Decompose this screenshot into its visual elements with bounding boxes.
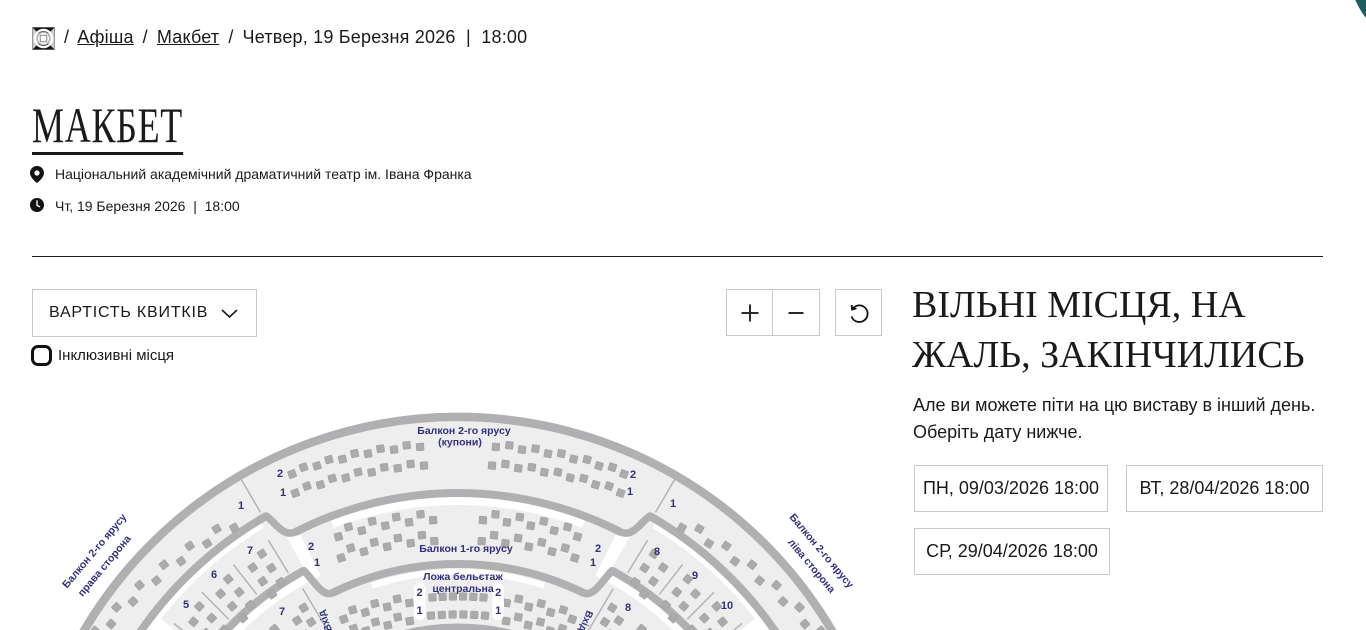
svg-text:10: 10 bbox=[721, 600, 733, 612]
svg-text:2: 2 bbox=[595, 543, 601, 555]
svg-text:2: 2 bbox=[416, 587, 422, 599]
svg-text:2: 2 bbox=[495, 587, 501, 599]
svg-text:7: 7 bbox=[247, 545, 253, 557]
svg-text:5: 5 bbox=[183, 599, 189, 611]
svg-text:8: 8 bbox=[625, 602, 631, 614]
svg-text:1: 1 bbox=[416, 605, 422, 617]
svg-text:Балкон 1-го ярусу: Балкон 1-го ярусу bbox=[419, 543, 513, 555]
svg-text:Балкон 2-го ярусу: Балкон 2-го ярусу bbox=[417, 425, 511, 437]
svg-text:центральна: центральна bbox=[432, 583, 493, 595]
svg-text:1: 1 bbox=[280, 487, 286, 499]
svg-text:2: 2 bbox=[630, 469, 636, 481]
svg-text:Ложа бельєтаж: Ложа бельєтаж bbox=[423, 571, 503, 583]
svg-text:1: 1 bbox=[495, 605, 501, 617]
svg-text:1: 1 bbox=[238, 500, 244, 512]
svg-text:2: 2 bbox=[308, 541, 314, 553]
svg-text:1: 1 bbox=[590, 557, 596, 569]
svg-text:8: 8 bbox=[654, 546, 660, 558]
svg-text:7: 7 bbox=[279, 606, 285, 618]
svg-text:1: 1 bbox=[627, 486, 633, 498]
svg-text:9: 9 bbox=[692, 570, 698, 582]
svg-text:1: 1 bbox=[314, 557, 320, 569]
svg-text:1: 1 bbox=[670, 498, 676, 510]
svg-text:2: 2 bbox=[277, 468, 283, 480]
svg-text:6: 6 bbox=[211, 569, 217, 581]
svg-text:(купони): (купони) bbox=[438, 437, 482, 449]
